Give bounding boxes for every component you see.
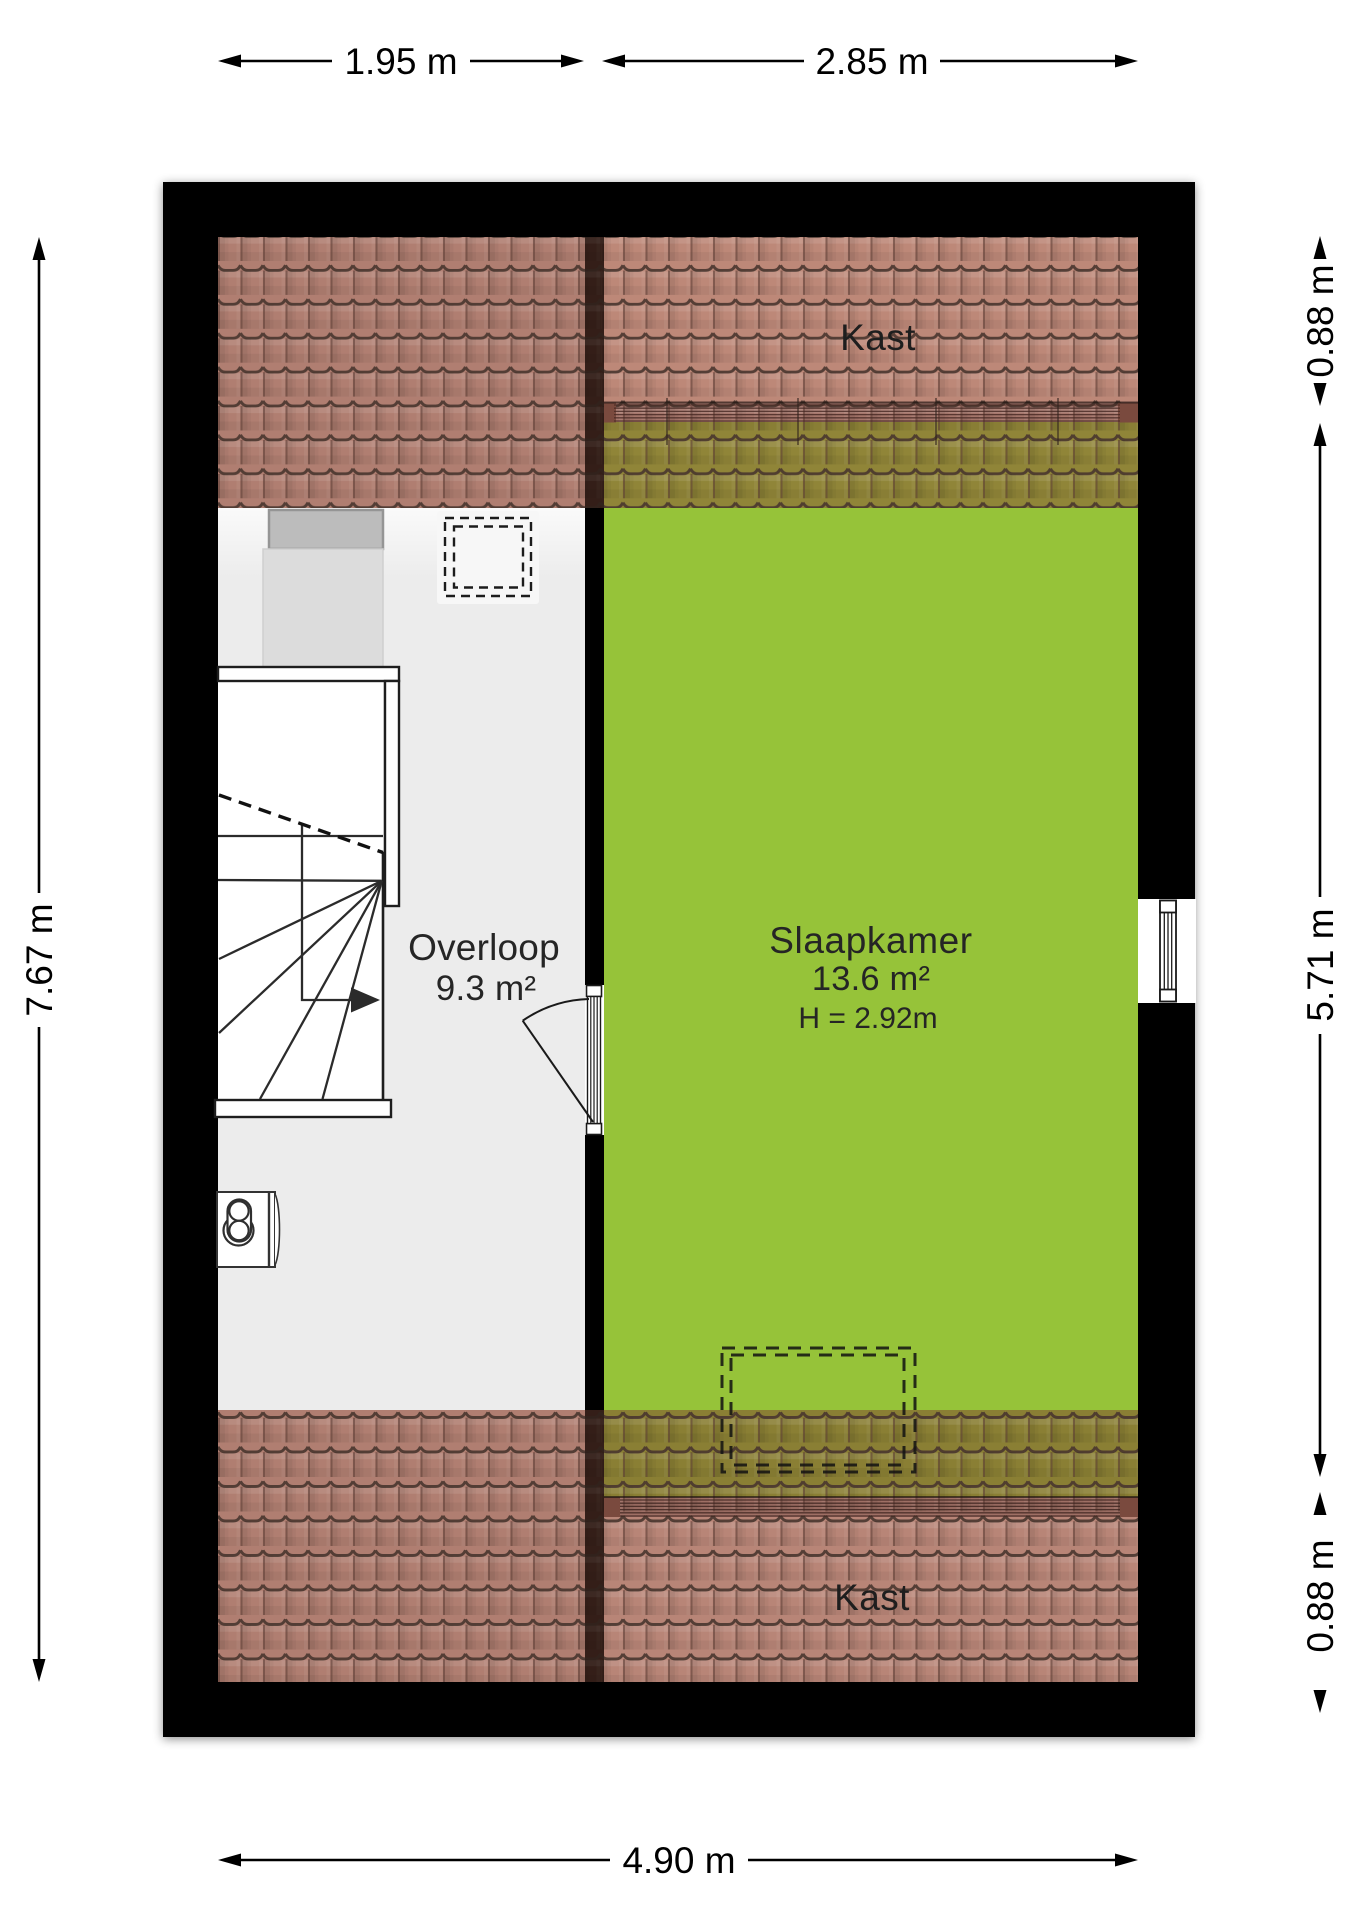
svg-text:13.6 m²: 13.6 m² bbox=[812, 960, 930, 998]
svg-text:Kast: Kast bbox=[840, 317, 916, 358]
svg-text:7.67 m: 7.67 m bbox=[19, 903, 60, 1016]
svg-text:0.88 m: 0.88 m bbox=[1300, 1539, 1341, 1652]
svg-text:9.3 m²: 9.3 m² bbox=[436, 969, 536, 1008]
svg-text:2.85 m: 2.85 m bbox=[815, 41, 928, 82]
svg-text:Slaapkamer: Slaapkamer bbox=[769, 920, 972, 961]
svg-text:4.90 m: 4.90 m bbox=[622, 1840, 735, 1881]
svg-text:1.95 m: 1.95 m bbox=[344, 41, 457, 82]
svg-text:5.71 m: 5.71 m bbox=[1300, 908, 1341, 1021]
svg-text:Overloop: Overloop bbox=[408, 927, 560, 968]
svg-text:Kast: Kast bbox=[834, 1577, 910, 1618]
svg-text:0.88 m: 0.88 m bbox=[1300, 264, 1341, 377]
svg-text:H = 2.92m: H = 2.92m bbox=[798, 1002, 937, 1035]
